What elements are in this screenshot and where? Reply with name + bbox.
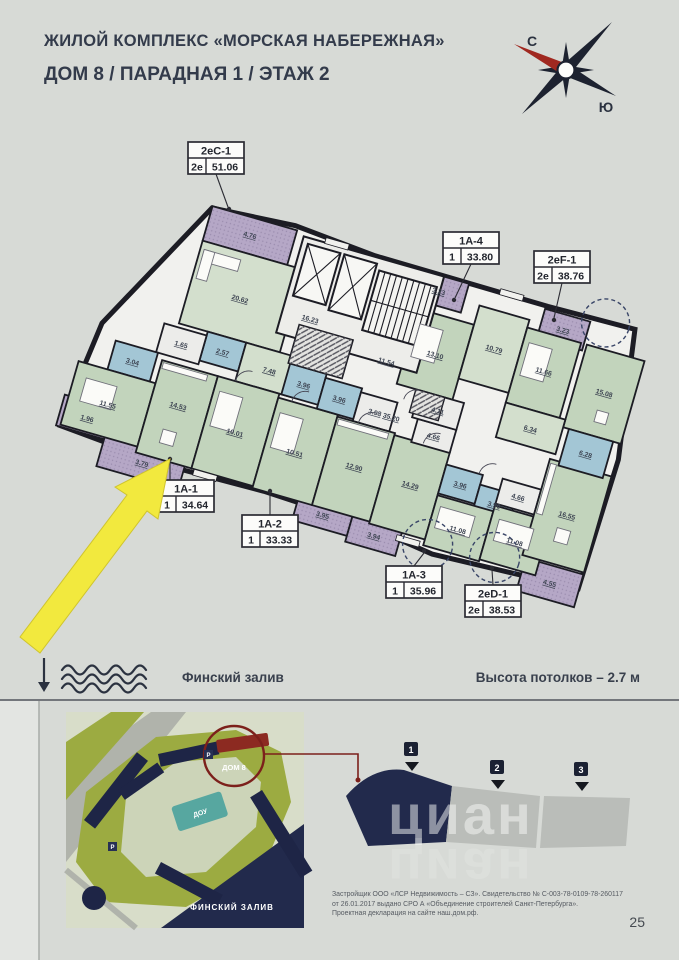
map-dom8-label: ДОМ 8: [222, 763, 246, 772]
svg-text:1: 1: [449, 252, 455, 264]
svg-text:1: 1: [408, 745, 413, 755]
svg-text:34.64: 34.64: [182, 500, 208, 512]
gulf-direction-arrow-icon: [38, 658, 50, 692]
svg-text:2еС-1: 2еС-1: [201, 146, 231, 158]
svg-text:1: 1: [164, 500, 170, 512]
svg-text:2: 2: [494, 763, 499, 773]
svg-text:P: P: [110, 845, 114, 851]
svg-text:1А-2: 1А-2: [258, 519, 282, 531]
svg-text:2е: 2е: [191, 162, 203, 174]
ceiling-height-note: Высота потолков – 2.7 м: [476, 670, 640, 685]
page-fold: [0, 701, 39, 960]
svg-text:1: 1: [248, 535, 254, 547]
svg-text:P: P: [206, 753, 210, 759]
floor-plan: 4.76 20.62 2.57 1.65 7.48 3.04 11.55 1.9…: [46, 162, 660, 613]
svg-text:2еF-1: 2еF-1: [548, 255, 577, 267]
developer-disclaimer: Застройщик ООО «ЛСР Недвижимость – СЗ». …: [332, 890, 642, 919]
section-marker-3: 3: [574, 762, 589, 791]
gulf-label: Финский залив: [182, 670, 284, 685]
section-2-shape: [446, 786, 540, 848]
svg-text:33.80: 33.80: [467, 252, 493, 264]
compass-north-label: С: [527, 33, 537, 49]
svg-text:1А-4: 1А-4: [459, 236, 484, 248]
disclaimer-line: от 26.01.2017 выдано СРО А «Объединение …: [332, 900, 642, 910]
svg-text:2е: 2е: [537, 271, 549, 283]
marker-triangle-icon: [405, 762, 419, 771]
marker-triangle-icon: [491, 780, 505, 789]
map-parking-marker: P: [204, 750, 213, 759]
site-map: ДОУ ДОМ 8 P P ФИНСКИЙ ЗАЛИВ: [66, 712, 312, 928]
section-1-shape: [346, 770, 452, 846]
svg-text:33.33: 33.33: [266, 535, 292, 547]
svg-text:1А-3: 1А-3: [402, 570, 426, 582]
highlight-arrow: [20, 459, 170, 653]
svg-text:51.06: 51.06: [212, 162, 238, 174]
disclaimer-line: Застройщик ООО «ЛСР Недвижимость – СЗ». …: [332, 890, 642, 900]
disclaimer-line: Проектная декларация на сайте наш.дом.рф…: [332, 909, 642, 919]
svg-text:1А-1: 1А-1: [174, 484, 198, 496]
section-3-shape: [540, 796, 630, 848]
svg-text:1: 1: [392, 586, 398, 598]
apartment-callout-2ес-1: 2еС-1 2е 51.06: [188, 142, 244, 211]
marker-triangle-icon: [575, 782, 589, 791]
svg-text:35.96: 35.96: [410, 586, 436, 598]
compass-icon: С Ю: [514, 22, 616, 115]
map-water-label: ФИНСКИЙ ЗАЛИВ: [190, 903, 274, 912]
svg-text:2еD-1: 2еD-1: [478, 589, 508, 601]
svg-text:38.76: 38.76: [558, 271, 584, 283]
svg-text:2е: 2е: [468, 605, 480, 617]
floor-plan-canvas: С Ю: [0, 0, 679, 960]
section-marker-1: 1: [404, 742, 419, 771]
waves-icon: [62, 666, 146, 693]
section-marker-2: 2: [490, 760, 505, 789]
compass-south-label: Ю: [599, 99, 613, 115]
svg-text:38.53: 38.53: [489, 605, 515, 617]
brochure-page: ЖИЛОЙ КОМПЛЕКС «МОРСКАЯ НАБЕРЕЖНАЯ» ДОМ …: [0, 0, 679, 960]
map-parking-marker: P: [108, 842, 117, 851]
sections-diagram: 1 2 3: [346, 742, 630, 848]
svg-text:3: 3: [578, 765, 583, 775]
page-number: 25: [629, 914, 645, 930]
